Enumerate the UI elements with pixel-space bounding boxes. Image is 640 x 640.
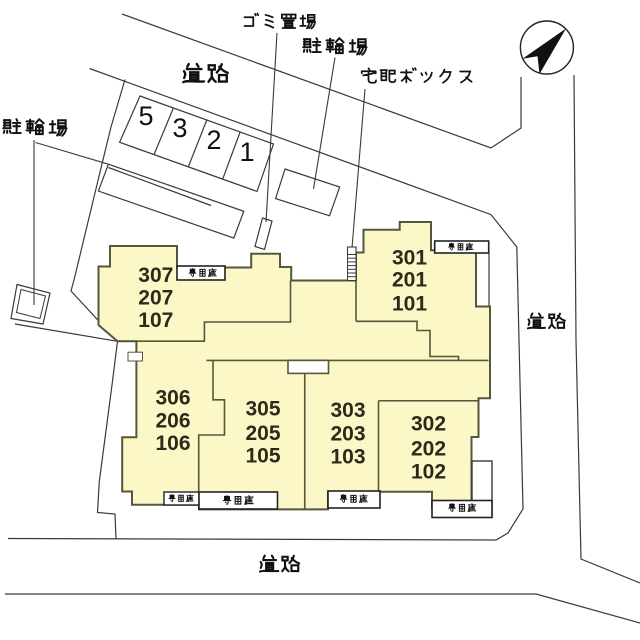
svg-text:206: 206 [155, 410, 190, 433]
svg-text:106: 106 [155, 432, 190, 455]
svg-text:303: 303 [330, 399, 365, 422]
svg-text:107: 107 [138, 309, 173, 332]
svg-text:301: 301 [392, 246, 427, 269]
svg-text:205: 205 [245, 422, 280, 445]
svg-text:305: 305 [245, 398, 280, 421]
svg-text:307: 307 [138, 264, 173, 287]
svg-text:102: 102 [411, 461, 446, 484]
svg-text:103: 103 [330, 446, 365, 469]
svg-text:203: 203 [330, 423, 365, 446]
svg-text:5: 5 [138, 101, 153, 131]
svg-text:202: 202 [411, 438, 446, 461]
svg-text:101: 101 [392, 292, 427, 315]
svg-text:2: 2 [206, 125, 221, 155]
svg-text:1: 1 [239, 137, 254, 167]
svg-text:105: 105 [245, 445, 280, 468]
svg-text:306: 306 [155, 387, 190, 410]
svg-text:201: 201 [392, 269, 427, 292]
svg-text:3: 3 [172, 113, 187, 143]
svg-text:207: 207 [138, 286, 173, 309]
svg-text:302: 302 [411, 413, 446, 436]
